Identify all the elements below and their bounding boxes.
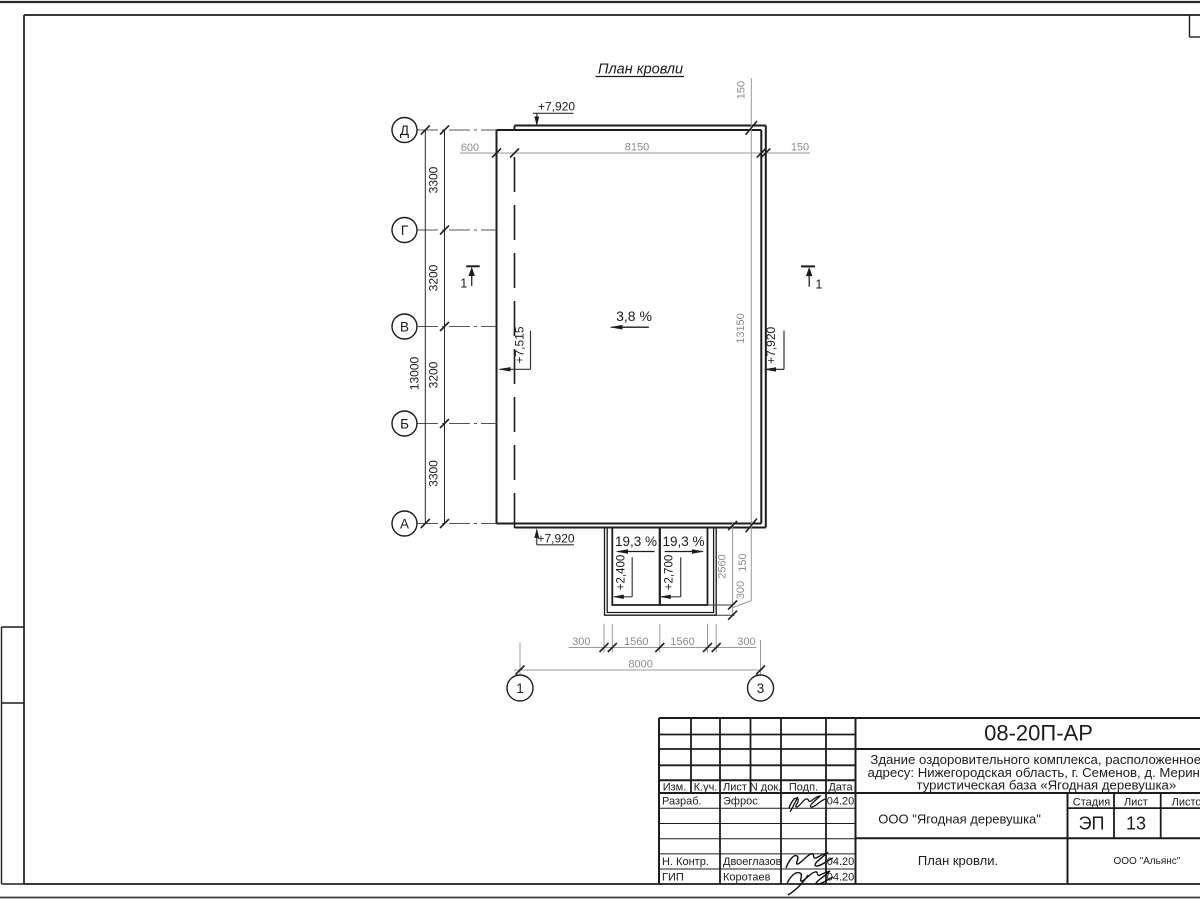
svg-text:Дата: Дата bbox=[828, 782, 853, 794]
svg-text:600: 600 bbox=[461, 142, 479, 154]
svg-text:+2,400: +2,400 bbox=[616, 555, 628, 591]
svg-text:Двоеглазов: Двоеглазов bbox=[723, 856, 782, 868]
svg-text:2560: 2560 bbox=[717, 554, 729, 578]
svg-text:1: 1 bbox=[815, 278, 822, 292]
svg-text:13000: 13000 bbox=[408, 356, 422, 390]
svg-text:Д: Д bbox=[400, 123, 409, 138]
svg-text:Г: Г bbox=[401, 223, 409, 238]
svg-text:3300: 3300 bbox=[427, 460, 441, 487]
svg-text:+7,920: +7,920 bbox=[764, 326, 778, 363]
svg-text:Эфрос: Эфрос bbox=[723, 796, 758, 808]
svg-text:1560: 1560 bbox=[670, 636, 694, 648]
svg-text:3: 3 bbox=[757, 681, 765, 696]
svg-text:13: 13 bbox=[1126, 814, 1146, 834]
svg-text:ГИП: ГИП bbox=[662, 872, 684, 884]
svg-text:1: 1 bbox=[516, 681, 524, 696]
svg-text:3200: 3200 bbox=[427, 264, 441, 291]
svg-text:19,3 %: 19,3 % bbox=[662, 534, 704, 549]
svg-text:А: А bbox=[400, 516, 409, 531]
svg-text:Стадия: Стадия bbox=[1073, 797, 1111, 809]
svg-text:08-20П-АР: 08-20П-АР bbox=[984, 721, 1093, 746]
svg-text:Разраб.: Разраб. bbox=[662, 796, 702, 808]
svg-text:Н. Контр.: Н. Контр. bbox=[662, 856, 709, 868]
svg-text:Лист: Лист bbox=[1124, 797, 1148, 809]
svg-text:13150: 13150 bbox=[735, 313, 747, 344]
svg-text:План кровли: План кровли bbox=[598, 62, 683, 78]
svg-text:300: 300 bbox=[572, 636, 590, 648]
svg-text:3300: 3300 bbox=[427, 166, 441, 193]
svg-text:ЭП: ЭП bbox=[1079, 814, 1105, 834]
svg-text:В: В bbox=[400, 319, 409, 334]
svg-text:150: 150 bbox=[737, 553, 749, 571]
svg-text:8000: 8000 bbox=[628, 659, 652, 671]
svg-text:Листов: Листов bbox=[1172, 797, 1200, 809]
svg-text:+7,920: +7,920 bbox=[538, 532, 575, 546]
svg-text:150: 150 bbox=[736, 81, 748, 99]
svg-text:04.20: 04.20 bbox=[827, 856, 855, 868]
svg-text:План кровли.: План кровли. bbox=[918, 853, 998, 868]
svg-text:+7,920: +7,920 bbox=[538, 100, 575, 114]
svg-text:8150: 8150 bbox=[625, 142, 649, 154]
svg-text:Коротаев: Коротаев bbox=[723, 872, 771, 884]
svg-text:04.20: 04.20 bbox=[827, 796, 855, 808]
svg-text:Б: Б bbox=[400, 416, 409, 431]
svg-text:К.уч.: К.уч. bbox=[694, 782, 718, 794]
svg-text:ООО "Альянс": ООО "Альянс" bbox=[1113, 856, 1180, 867]
svg-text:+7,515: +7,515 bbox=[513, 326, 527, 363]
svg-text:туристическая база «Ягодная де: туристическая база «Ягодная деревушка» bbox=[917, 778, 1177, 793]
svg-text:1560: 1560 bbox=[624, 636, 648, 648]
svg-text:300: 300 bbox=[737, 636, 755, 648]
svg-text:3,8 %: 3,8 % bbox=[616, 308, 652, 324]
svg-text:N док.: N док. bbox=[750, 782, 781, 794]
svg-text:300: 300 bbox=[735, 581, 747, 599]
svg-text:3200: 3200 bbox=[427, 361, 441, 388]
svg-text:1: 1 bbox=[460, 277, 467, 291]
svg-text:+2,700: +2,700 bbox=[664, 555, 676, 591]
svg-text:19,3 %: 19,3 % bbox=[615, 534, 657, 549]
svg-text:Изм.: Изм. bbox=[663, 782, 687, 794]
svg-text:ООО "Ягодная деревушка": ООО "Ягодная деревушка" bbox=[878, 812, 1041, 827]
svg-text:150: 150 bbox=[791, 142, 809, 154]
svg-text:Лист: Лист bbox=[723, 782, 747, 794]
svg-text:Подп.: Подп. bbox=[789, 782, 818, 794]
